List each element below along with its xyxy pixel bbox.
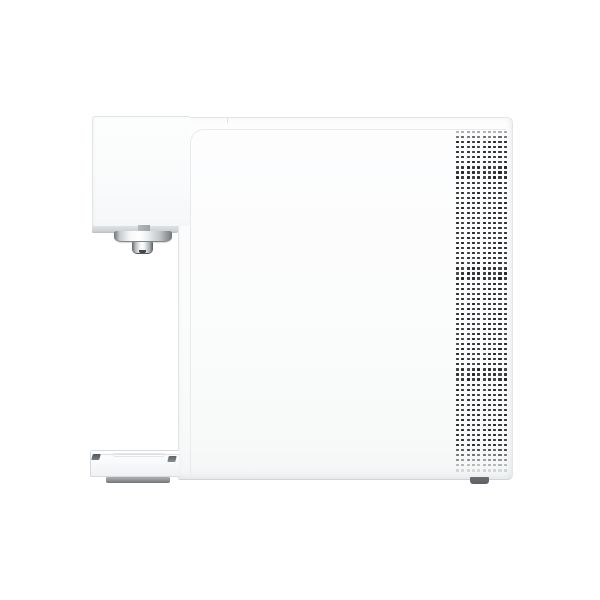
vent-hole — [498, 454, 501, 456]
vent-hole — [472, 373, 475, 375]
vent-hole — [467, 313, 470, 315]
vent-hole — [488, 232, 491, 234]
vent-hole — [483, 313, 486, 315]
vent-hole — [493, 242, 496, 244]
vent-hole — [493, 303, 496, 305]
vent-hole — [456, 293, 459, 295]
vent-hole — [467, 303, 470, 305]
vent-hole — [498, 192, 501, 194]
vent-hole — [498, 323, 501, 325]
vent-hole — [504, 333, 507, 335]
vent-hole — [498, 378, 501, 380]
vent-hole — [461, 303, 464, 305]
tray-grate-inset — [113, 453, 165, 457]
vent-hole — [456, 156, 459, 158]
vent-hole — [461, 141, 464, 143]
vent-hole — [498, 308, 501, 310]
vent-hole — [483, 288, 486, 290]
vent-hole — [467, 156, 470, 158]
vent-hole — [477, 439, 480, 441]
vent-hole — [456, 207, 459, 209]
vent-hole — [483, 328, 486, 330]
vent-hole — [472, 207, 475, 209]
vent-hole — [493, 373, 496, 375]
vent-hole — [467, 449, 470, 451]
vent-hole — [488, 141, 491, 143]
vent-hole — [488, 313, 491, 315]
vent-hole — [477, 267, 480, 269]
vent-hole — [504, 303, 507, 305]
vent-hole — [498, 212, 501, 214]
vent-hole — [488, 283, 491, 285]
product-photo — [0, 0, 600, 600]
vent-hole — [461, 353, 464, 355]
vent-hole — [456, 247, 459, 249]
vent-hole — [467, 176, 470, 178]
vent-hole — [472, 469, 475, 471]
vent-hole — [488, 217, 491, 219]
vent-hole — [488, 378, 491, 380]
vent-hole — [483, 394, 486, 396]
vent-hole — [467, 368, 470, 370]
vent-hole — [456, 469, 459, 471]
vent-hole — [483, 141, 486, 143]
vent-hole — [472, 444, 475, 446]
vent-hole — [498, 318, 501, 320]
vent-hole — [472, 176, 475, 178]
vent-hole — [504, 182, 507, 184]
vent-hole — [461, 197, 464, 199]
vent-hole — [477, 156, 480, 158]
vent-hole — [483, 353, 486, 355]
vent-hole — [488, 151, 491, 153]
vent-hole — [483, 384, 486, 386]
vent-hole — [477, 424, 480, 426]
vent-hole — [483, 459, 486, 461]
vent-hole — [504, 283, 507, 285]
vent-hole — [467, 328, 470, 330]
vent-hole — [467, 434, 470, 436]
vent-hole — [498, 384, 501, 386]
vent-hole — [493, 353, 496, 355]
vent-hole — [467, 131, 470, 133]
vent-hole — [461, 404, 464, 406]
vent-hole — [477, 409, 480, 411]
vent-hole — [477, 333, 480, 335]
vent-hole — [477, 257, 480, 259]
vent-hole — [472, 308, 475, 310]
vent-hole — [472, 131, 475, 133]
vent-hole — [493, 171, 496, 173]
vent-hole — [472, 409, 475, 411]
vent-hole — [472, 136, 475, 138]
vent-hole — [477, 373, 480, 375]
vent-hole — [461, 267, 464, 269]
vent-hole — [456, 419, 459, 421]
vent-hole — [498, 197, 501, 199]
vent-hole — [472, 348, 475, 350]
vent-hole — [498, 429, 501, 431]
vent-hole — [493, 419, 496, 421]
vent-hole — [467, 298, 470, 300]
vent-hole — [467, 459, 470, 461]
vent-hole — [493, 131, 496, 133]
vent-hole — [456, 267, 459, 269]
vent-hole — [498, 353, 501, 355]
vent-hole — [504, 459, 507, 461]
vent-hole — [461, 156, 464, 158]
vent-hole — [488, 323, 491, 325]
vent-hole — [456, 464, 459, 466]
vent-hole — [467, 166, 470, 168]
vent-hole — [461, 444, 464, 446]
vent-hole — [467, 141, 470, 143]
faucet-flange — [114, 231, 172, 242]
vent-hole — [461, 293, 464, 295]
vent-hole — [456, 303, 459, 305]
vent-hole — [483, 399, 486, 401]
vent-hole — [456, 429, 459, 431]
vent-hole — [456, 176, 459, 178]
vent-hole — [467, 232, 470, 234]
vent-hole — [498, 272, 501, 274]
vent-hole — [461, 419, 464, 421]
vent-hole — [504, 454, 507, 456]
vent-hole — [504, 277, 507, 279]
vent-hole — [504, 237, 507, 239]
vent-hole — [504, 232, 507, 234]
vent-hole — [477, 187, 480, 189]
vent-hole — [472, 378, 475, 380]
vent-hole — [467, 338, 470, 340]
vent-hole — [483, 469, 486, 471]
vent-hole — [477, 288, 480, 290]
vent-hole — [504, 257, 507, 259]
vent-hole — [472, 414, 475, 416]
vent-hole — [504, 469, 507, 471]
vent-hole — [467, 192, 470, 194]
vent-hole — [477, 303, 480, 305]
vent-hole — [493, 232, 496, 234]
vent-hole — [461, 247, 464, 249]
vent-hole — [504, 394, 507, 396]
vent-hole — [456, 399, 459, 401]
vent-hole — [488, 333, 491, 335]
vent-hole — [504, 378, 507, 380]
body-rear-foot — [470, 477, 489, 484]
vent-hole — [498, 343, 501, 345]
vent-hole — [477, 161, 480, 163]
vent-hole — [467, 136, 470, 138]
vent-hole — [461, 237, 464, 239]
vent-hole — [472, 146, 475, 148]
vent-hole — [467, 389, 470, 391]
vent-hole — [493, 459, 496, 461]
vent-hole — [461, 161, 464, 163]
vent-hole — [504, 131, 507, 133]
vent-hole — [477, 202, 480, 204]
vent-hole — [488, 161, 491, 163]
vent-hole — [498, 283, 501, 285]
vent-hole — [483, 368, 486, 370]
vent-hole — [467, 207, 470, 209]
vent-hole — [467, 151, 470, 153]
vent-hole — [493, 454, 496, 456]
vent-hole — [456, 187, 459, 189]
vent-hole — [467, 454, 470, 456]
vent-hole — [477, 298, 480, 300]
vent-hole — [488, 459, 491, 461]
vent-hole — [461, 459, 464, 461]
vent-hole — [472, 252, 475, 254]
vent-hole — [477, 394, 480, 396]
vent-hole — [472, 222, 475, 224]
vent-hole — [477, 197, 480, 199]
vent-hole — [504, 247, 507, 249]
vent-hole — [472, 298, 475, 300]
vent-hole — [467, 318, 470, 320]
vent-hole — [456, 222, 459, 224]
vent-hole — [488, 242, 491, 244]
vent-hole — [493, 404, 496, 406]
vent-hole — [456, 232, 459, 234]
vent-hole — [488, 353, 491, 355]
vent-hole — [456, 192, 459, 194]
vent-hole — [498, 131, 501, 133]
vent-hole — [483, 323, 486, 325]
vent-hole — [488, 131, 491, 133]
vent-hole — [488, 182, 491, 184]
vent-hole — [493, 439, 496, 441]
vent-hole — [456, 348, 459, 350]
vent-hole — [472, 464, 475, 466]
vent-hole — [472, 242, 475, 244]
vent-hole — [504, 348, 507, 350]
vent-hole — [483, 318, 486, 320]
vent-hole — [483, 434, 486, 436]
vent-hole — [488, 227, 491, 229]
vent-hole — [461, 217, 464, 219]
vent-hole — [461, 146, 464, 148]
vent-hole — [472, 439, 475, 441]
vent-hole — [467, 363, 470, 365]
vent-hole — [483, 454, 486, 456]
vent-hole — [498, 187, 501, 189]
vent-hole — [493, 429, 496, 431]
vent-hole — [504, 146, 507, 148]
vent-hole — [493, 434, 496, 436]
vent-hole — [461, 449, 464, 451]
vent-hole — [488, 197, 491, 199]
vent-hole — [461, 368, 464, 370]
vent-hole — [467, 272, 470, 274]
vent-hole — [483, 449, 486, 451]
vent-hole — [456, 141, 459, 143]
vent-hole — [498, 389, 501, 391]
vent-hole — [472, 166, 475, 168]
vent-hole — [493, 469, 496, 471]
vent-hole — [504, 389, 507, 391]
vent-hole — [472, 353, 475, 355]
vent-hole — [498, 227, 501, 229]
vent-hole — [461, 131, 464, 133]
vent-hole — [483, 151, 486, 153]
vent-hole — [467, 197, 470, 199]
vent-hole — [488, 328, 491, 330]
vent-hole — [493, 222, 496, 224]
vent-hole — [488, 192, 491, 194]
vent-hole — [461, 222, 464, 224]
vent-hole — [456, 197, 459, 199]
vent-hole — [493, 378, 496, 380]
vent-hole — [498, 464, 501, 466]
vent-hole — [488, 146, 491, 148]
vent-hole — [483, 227, 486, 229]
vent-hole — [498, 368, 501, 370]
vent-hole — [467, 146, 470, 148]
vent-hole — [504, 272, 507, 274]
vent-hole — [488, 464, 491, 466]
vent-hole — [456, 151, 459, 153]
vent-hole — [498, 156, 501, 158]
vent-hole — [493, 151, 496, 153]
vent-hole — [488, 444, 491, 446]
vent-hole — [488, 277, 491, 279]
vent-hole — [498, 242, 501, 244]
vent-hole — [477, 308, 480, 310]
vent-hole — [493, 323, 496, 325]
vent-hole — [472, 272, 475, 274]
vent-hole — [472, 156, 475, 158]
vent-hole — [477, 217, 480, 219]
vent-hole — [493, 156, 496, 158]
vent-hole — [498, 358, 501, 360]
vent-hole — [504, 252, 507, 254]
vent-hole — [483, 303, 486, 305]
purifier-body-panel — [178, 117, 513, 480]
vent-hole — [493, 368, 496, 370]
vent-hole — [504, 212, 507, 214]
vent-hole — [488, 469, 491, 471]
vent-hole — [477, 454, 480, 456]
vent-hole — [488, 404, 491, 406]
vent-hole — [488, 368, 491, 370]
vent-hole — [498, 252, 501, 254]
vent-hole — [472, 257, 475, 259]
vent-hole — [456, 328, 459, 330]
vent-hole — [477, 277, 480, 279]
vent-hole — [461, 232, 464, 234]
vent-hole — [461, 166, 464, 168]
vent-hole — [504, 166, 507, 168]
vent-hole — [488, 424, 491, 426]
vent-hole — [504, 434, 507, 436]
vent-hole — [504, 444, 507, 446]
vent-hole — [498, 151, 501, 153]
vent-hole — [456, 394, 459, 396]
vent-hole — [483, 192, 486, 194]
vent-hole — [498, 313, 501, 315]
vent-hole — [472, 313, 475, 315]
vent-hole — [461, 394, 464, 396]
tray-slot-left — [91, 454, 101, 460]
vent-hole — [483, 272, 486, 274]
vent-hole — [467, 424, 470, 426]
vent-hole — [467, 277, 470, 279]
vent-hole — [461, 363, 464, 365]
vent-hole — [456, 277, 459, 279]
vent-hole — [483, 409, 486, 411]
vent-hole — [461, 373, 464, 375]
vent-hole — [483, 247, 486, 249]
vent-hole — [483, 439, 486, 441]
vent-hole — [477, 136, 480, 138]
vent-hole — [483, 187, 486, 189]
vent-hole — [467, 283, 470, 285]
vent-hole — [488, 267, 491, 269]
vent-hole — [456, 283, 459, 285]
vent-hole — [504, 404, 507, 406]
vent-hole — [504, 262, 507, 264]
vent-hole — [488, 389, 491, 391]
vent-hole — [498, 262, 501, 264]
vent-hole — [488, 303, 491, 305]
vent-hole — [493, 262, 496, 264]
vent-hole — [493, 343, 496, 345]
vent-hole — [467, 252, 470, 254]
vent-hole — [488, 338, 491, 340]
vent-hole — [483, 202, 486, 204]
vent-hole — [461, 389, 464, 391]
vent-hole — [456, 313, 459, 315]
vent-hole — [493, 318, 496, 320]
vent-hole — [467, 444, 470, 446]
vent-hole — [483, 252, 486, 254]
vent-hole — [488, 237, 491, 239]
vent-hole — [456, 439, 459, 441]
vent-hole — [488, 262, 491, 264]
vent-hole — [504, 424, 507, 426]
vent-hole — [477, 146, 480, 148]
vent-hole — [467, 227, 470, 229]
vent-hole — [498, 404, 501, 406]
vent-hole — [472, 358, 475, 360]
vent-hole — [467, 171, 470, 173]
vent-hole — [483, 283, 486, 285]
vent-hole — [488, 288, 491, 290]
vent-hole — [461, 171, 464, 173]
vent-hole — [483, 373, 486, 375]
vent-hole — [483, 429, 486, 431]
vent-hole — [504, 358, 507, 360]
vent-hole — [477, 207, 480, 209]
vent-hole — [456, 146, 459, 148]
vent-hole — [483, 197, 486, 199]
vent-hole — [498, 136, 501, 138]
vent-hole — [456, 389, 459, 391]
vent-hole — [493, 252, 496, 254]
vent-hole — [456, 343, 459, 345]
vent-hole — [467, 222, 470, 224]
vent-hole — [493, 212, 496, 214]
vent-hole — [504, 399, 507, 401]
vent-hole — [472, 394, 475, 396]
vent-hole — [456, 227, 459, 229]
vent-hole — [477, 141, 480, 143]
vent-hole — [456, 257, 459, 259]
vent-hole — [456, 131, 459, 133]
vent-hole — [477, 242, 480, 244]
